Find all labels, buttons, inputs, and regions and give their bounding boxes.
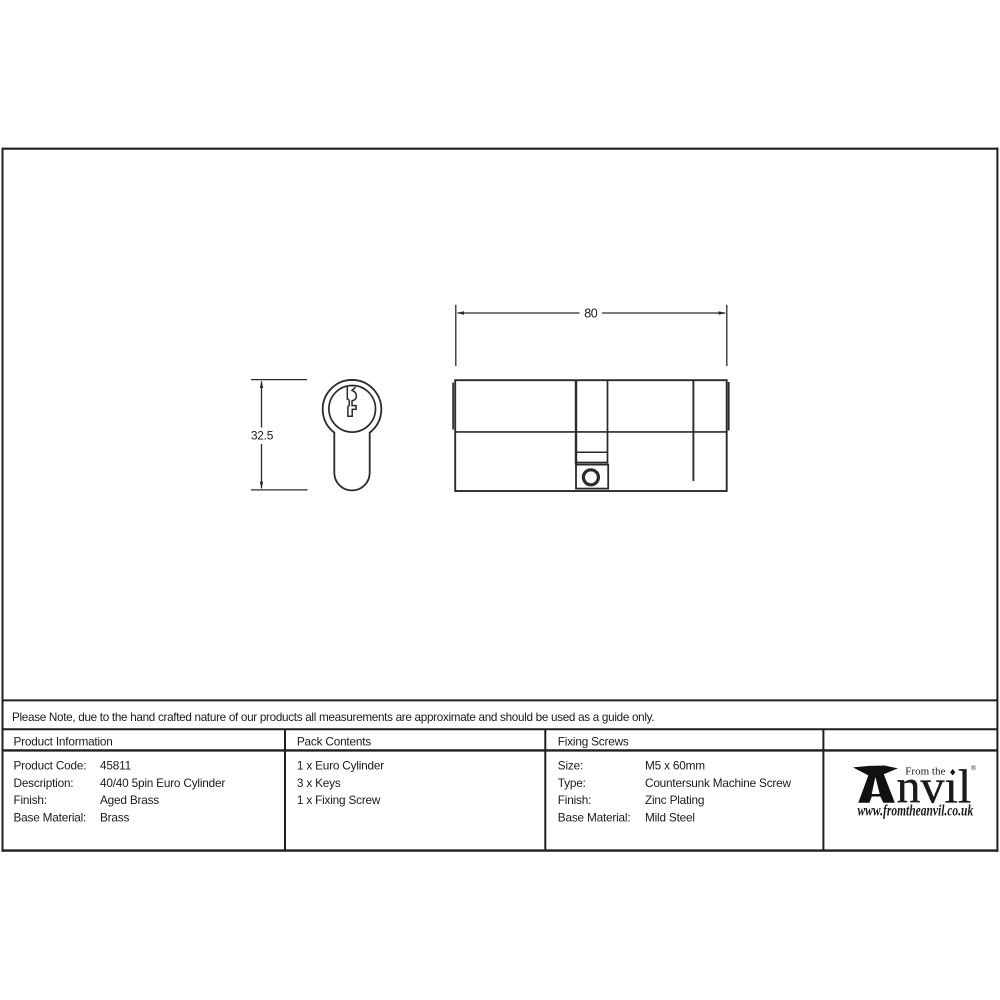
svg-text:Description:: Description: xyxy=(14,776,74,790)
svg-text:Aged Brass: Aged Brass xyxy=(100,793,159,807)
svg-text:Fixing Screws: Fixing Screws xyxy=(558,734,629,748)
svg-text:32.5: 32.5 xyxy=(251,429,274,443)
svg-text:Base Material:: Base Material: xyxy=(558,811,631,825)
svg-text:www.fromtheanvil.co.uk: www.fromtheanvil.co.uk xyxy=(858,803,974,820)
svg-text:40/40 5pin Euro Cylinder: 40/40 5pin Euro Cylinder xyxy=(100,776,225,790)
svg-text:Type:: Type: xyxy=(558,776,586,790)
svg-text:1 x Euro Cylinder: 1 x Euro Cylinder xyxy=(297,759,384,773)
svg-text:45811: 45811 xyxy=(100,759,131,773)
svg-text:M5 x 60mm: M5 x 60mm xyxy=(645,759,705,773)
svg-text:Countersunk Machine Screw: Countersunk Machine Screw xyxy=(645,776,791,790)
svg-text:Base Material:: Base Material: xyxy=(14,811,87,825)
svg-text:Zinc Plating: Zinc Plating xyxy=(645,793,704,807)
svg-text:Finish:: Finish: xyxy=(558,793,591,807)
svg-text:1 x Fixing Screw: 1 x Fixing Screw xyxy=(297,793,381,807)
svg-text:3 x Keys: 3 x Keys xyxy=(297,776,341,790)
svg-text:Product Information: Product Information xyxy=(14,734,113,748)
svg-text:80: 80 xyxy=(584,307,598,321)
svg-text:Finish:: Finish: xyxy=(14,793,47,807)
svg-text:Size:: Size: xyxy=(558,759,583,773)
svg-text:Mild Steel: Mild Steel xyxy=(645,811,695,825)
svg-text:®: ® xyxy=(971,763,977,772)
svg-text:Product Code:: Product Code: xyxy=(14,759,87,773)
svg-text:Pack Contents: Pack Contents xyxy=(297,734,371,748)
svg-text:Please Note, due to the hand c: Please Note, due to the hand crafted nat… xyxy=(12,711,654,724)
svg-text:Brass: Brass xyxy=(100,811,129,825)
svg-text:From the: From the xyxy=(905,765,945,777)
